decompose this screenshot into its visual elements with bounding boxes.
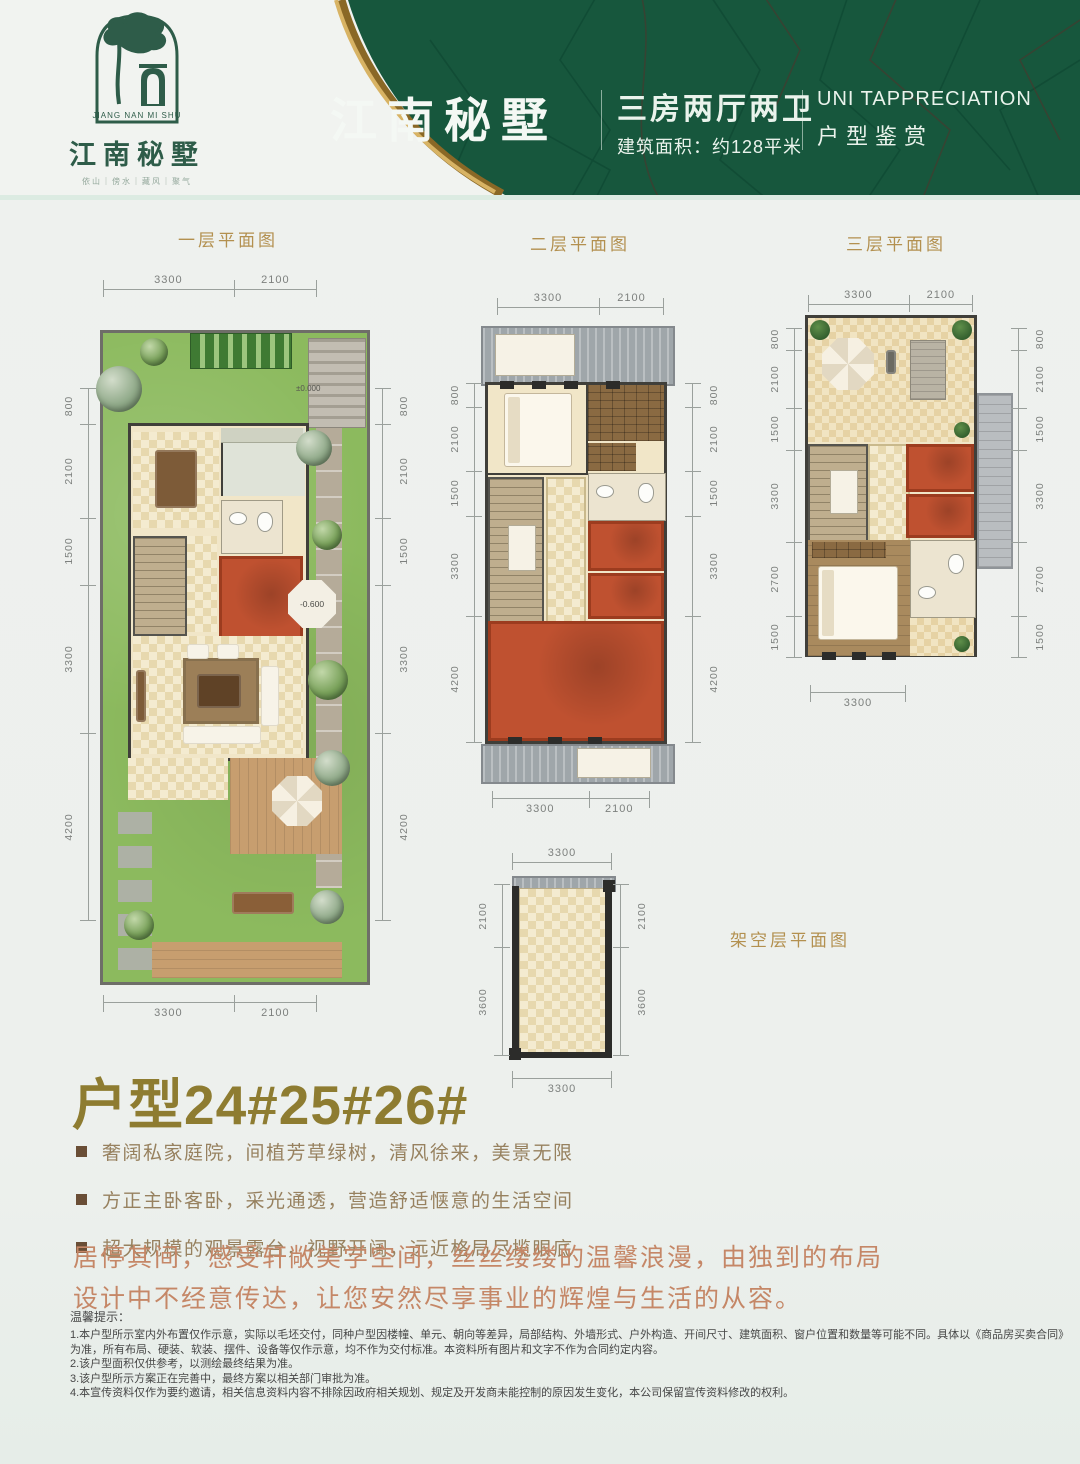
bullet-square-icon — [76, 1194, 87, 1205]
dim-label: 3300 — [769, 482, 781, 509]
feature-text: 奢阔私家庭院，间植芳草绿树，清风徐来，美景无限 — [102, 1138, 574, 1165]
dim-segment: 1500 — [692, 471, 709, 516]
red-room — [906, 494, 974, 538]
dim-label: 2700 — [1034, 565, 1046, 592]
dim-segment: 3300 — [492, 798, 589, 816]
dim-segment: 3300 — [1018, 450, 1035, 542]
bed-icon — [504, 393, 572, 467]
skylight-panel — [495, 334, 575, 376]
dim-segment: 3300 — [382, 585, 399, 733]
dim-segment: 2100 — [599, 290, 664, 308]
dim-segment: 1500 — [1018, 408, 1035, 450]
dim-segment: 2100 — [589, 798, 650, 816]
floor3-plan — [805, 315, 977, 663]
outside-walkway — [977, 393, 1013, 569]
wall — [512, 886, 519, 1056]
dim-segment: 3300 — [497, 290, 599, 308]
entry-steps — [308, 338, 366, 428]
dim-label: 3600 — [477, 988, 489, 1015]
dim-label: 2100 — [769, 366, 781, 393]
dim-label: 3300 — [398, 645, 410, 672]
plant-icon — [954, 422, 970, 438]
plant-icon — [954, 636, 970, 652]
dim-label: 1500 — [398, 538, 410, 565]
dim-label: 800 — [1034, 329, 1046, 350]
bullet-square-icon — [76, 1146, 87, 1157]
slogan-line1: 居停其间，感受轩敞美学空间，丝丝缕缕的温馨浪漫，由独到的布局 — [73, 1238, 883, 1279]
dim-segment: 2100 — [692, 407, 709, 471]
window-block — [852, 652, 866, 660]
window-block — [882, 652, 896, 660]
dim-label: 3300 — [548, 847, 576, 859]
dim-label: 800 — [398, 396, 410, 417]
sink-icon — [229, 512, 247, 525]
brand-logo: JIANG NAN MI SHU 江南秘墅 依山｜傍水｜藏风｜聚气 — [52, 8, 222, 187]
dim-segment: 800 — [1018, 328, 1035, 350]
stair-landing — [830, 470, 858, 514]
dim-segment: 2100 — [234, 272, 317, 290]
floor3-dim-bottom: 3300 — [810, 692, 906, 710]
dim-segment: 3300 — [512, 845, 612, 863]
appreciation-en: UNI TAPPRECIATION — [817, 88, 1032, 111]
dim-label: 4200 — [398, 813, 410, 840]
window-block — [606, 381, 620, 389]
armchair-icon — [217, 644, 239, 659]
dim-segment: 800 — [458, 383, 475, 407]
dim-segment: 4200 — [72, 733, 89, 921]
floor3-title: 三层平面图 — [826, 230, 966, 255]
dim-segment: 800 — [72, 388, 89, 424]
dim-segment: 2100 — [382, 424, 399, 518]
skylight-panel — [577, 748, 651, 778]
dim-segment: 3300 — [458, 516, 475, 616]
disclaimer-item: 1.本户型所示室内外布置仅作示意，实际以毛坯交付，同种户型因楼幢、单元、朝向等差… — [70, 1328, 1074, 1357]
dim-segment: 3300 — [103, 272, 234, 290]
stilt-dim-bottom: 3300 — [512, 1078, 612, 1096]
dim-label: 3300 — [534, 292, 562, 304]
dim-label: 2100 — [927, 289, 955, 301]
elevation-pad: -0.600 — [288, 580, 336, 628]
logo-brand-cn: 江南秘墅 — [52, 133, 222, 172]
dim-label: 1500 — [63, 538, 75, 565]
feature-text: 方正主卧客卧，采光通透，营造舒适惬意的生活空间 — [102, 1186, 574, 1213]
entry-elevation-marker: ±0.000 — [296, 384, 320, 393]
dim-label: 1500 — [449, 480, 461, 507]
tree-icon — [308, 660, 348, 700]
unit-spec: 三房两厅两卫 建筑面积：约128平米 — [617, 84, 815, 159]
dim-segment: 3300 — [103, 1002, 234, 1020]
dim-label: 1500 — [1034, 624, 1046, 651]
dim-label: 4200 — [63, 813, 75, 840]
tree-icon — [140, 338, 168, 366]
umbrella-icon — [272, 776, 322, 826]
tv-cabinet — [136, 670, 146, 722]
red-terrace-room — [488, 621, 664, 741]
appreciation-cn: 户型鉴赏 — [817, 119, 1032, 151]
lounge-chair-icon — [910, 340, 946, 400]
bed-icon — [818, 566, 898, 640]
dim-segment: 3300 — [692, 516, 709, 616]
dim-label: 3300 — [526, 803, 554, 815]
floor1-dim-bottom: 3300 2100 — [103, 1002, 317, 1020]
wardrobe-icon — [588, 385, 664, 441]
dim-segment: 2100 — [778, 350, 795, 408]
dim-segment: 2100 — [458, 407, 475, 471]
dim-segment: 1500 — [382, 518, 399, 585]
dim-label: 2100 — [605, 803, 633, 815]
dim-label: 1500 — [769, 624, 781, 651]
toilet-icon — [948, 554, 964, 574]
bench-icon — [232, 892, 294, 914]
kitchen-counter — [221, 428, 303, 443]
stilt-plan — [512, 876, 612, 1060]
floor2-dim-right: 800 2100 1500 3300 4200 — [692, 383, 709, 743]
floor1-dim-right: 800 2100 1500 3300 4200 — [382, 388, 399, 921]
tree-icon — [314, 750, 350, 786]
tree-icon — [96, 366, 142, 412]
dim-segment: 800 — [382, 388, 399, 424]
plant-icon — [810, 320, 830, 340]
dim-segment: 3300 — [810, 692, 906, 710]
hall-runner — [868, 444, 910, 542]
dim-label: 2100 — [63, 457, 75, 484]
dim-segment: 1500 — [72, 518, 89, 585]
dim-segment: 1500 — [778, 408, 795, 450]
staircase — [133, 536, 187, 636]
corner-post — [603, 880, 615, 892]
dim-label: 2100 — [477, 902, 489, 929]
page-title: 江南秘墅 — [330, 82, 558, 151]
window-block — [822, 652, 836, 660]
logo-brand-en: JIANG NAN MI SHU — [93, 111, 182, 120]
dim-label: 3300 — [154, 274, 182, 286]
stilt-plan-title: 架空层平面图 — [730, 926, 850, 951]
dim-label: 2100 — [261, 1007, 289, 1019]
dim-segment: 3600 — [620, 947, 637, 1056]
dim-label: 3300 — [844, 289, 872, 301]
dim-label: 2100 — [636, 902, 648, 929]
sink-icon — [918, 586, 936, 599]
dim-label: 3300 — [449, 552, 461, 579]
tree-icon — [124, 910, 154, 940]
sink-icon — [596, 485, 614, 498]
appreciation-block: UNI TAPPRECIATION 户型鉴赏 — [817, 88, 1032, 151]
dim-label: 1500 — [769, 416, 781, 443]
dim-label: 2700 — [769, 565, 781, 592]
hall-runner — [546, 477, 586, 623]
floor3-dim-top: 3300 2100 — [808, 287, 973, 305]
dim-segment: 800 — [778, 328, 795, 350]
tree-icon — [296, 430, 332, 466]
coffee-table-icon — [197, 674, 241, 708]
red-room — [588, 521, 664, 571]
dim-segment: 2100 — [486, 884, 503, 947]
tree-icon — [310, 890, 344, 924]
wall — [605, 886, 612, 1056]
foyer — [187, 536, 217, 632]
dim-segment: 2100 — [620, 884, 637, 947]
armchair-icon — [187, 644, 209, 659]
wall — [512, 1052, 612, 1058]
stilt-dim-right: 2100 3600 — [620, 884, 637, 1056]
floor2-dim-left: 800 2100 1500 3300 4200 — [458, 383, 475, 743]
dim-segment: 2100 — [72, 424, 89, 518]
disclaimer-item: 2.该户型面积仅供参考，以测绘最终结果为准。 — [70, 1357, 1074, 1372]
dim-label: 4200 — [708, 666, 720, 693]
corner-post — [509, 1048, 521, 1060]
logo-tagline: 依山｜傍水｜藏风｜聚气 — [52, 176, 222, 187]
dresser-icon — [588, 443, 636, 471]
disclaimer-item: 4.本宣传资料仅作为要约邀请，相关信息资料内容不排除因政府相关规划、规定及开发商… — [70, 1386, 1074, 1401]
dim-label: 3300 — [154, 1007, 182, 1019]
dim-segment: 3600 — [486, 947, 503, 1056]
bathroom — [910, 540, 976, 618]
dim-label: 800 — [769, 329, 781, 350]
floor3-building — [805, 315, 977, 657]
bathroom — [221, 500, 283, 554]
dim-segment: 1500 — [458, 471, 475, 516]
window-block — [564, 381, 578, 389]
stair-landing — [508, 525, 536, 571]
dim-label: 4200 — [449, 666, 461, 693]
toilet-icon — [638, 483, 654, 503]
dim-segment: 2100 — [234, 1002, 317, 1020]
dim-label: 1500 — [708, 480, 720, 507]
dim-label: 3300 — [844, 697, 872, 709]
dim-label: 2100 — [398, 457, 410, 484]
floor1-plan: ±0.000 -0.600 — [100, 330, 370, 985]
dim-label: 800 — [63, 396, 75, 417]
dim-segment: 2700 — [778, 542, 795, 617]
feature-item: 奢阔私家庭院，间植芳草绿树，清风徐来，美景无限 — [76, 1138, 574, 1165]
stilt-dim-top: 3300 — [512, 845, 612, 863]
floor1-title: 一层平面图 — [158, 226, 298, 251]
dim-segment: 2100 — [909, 287, 973, 305]
red-room — [588, 573, 664, 619]
tree-icon — [312, 520, 342, 550]
toilet-icon — [257, 512, 273, 532]
dim-label: 1500 — [1034, 416, 1046, 443]
stepping-stones — [118, 810, 152, 970]
header-divider — [802, 90, 803, 150]
dim-segment: 1500 — [778, 616, 795, 658]
dim-segment: 4200 — [458, 616, 475, 743]
dim-segment: 4200 — [382, 733, 399, 921]
sofa-icon — [183, 726, 261, 744]
floor3-dim-right: 800 2100 1500 3300 2700 1500 — [1018, 328, 1035, 658]
window-block — [500, 381, 514, 389]
dim-label: 800 — [708, 385, 720, 406]
dim-segment: 3300 — [512, 1078, 612, 1096]
dim-segment: 800 — [692, 383, 709, 407]
floor3-dim-left: 800 2100 1500 3300 2700 1500 — [778, 328, 795, 658]
dim-segment: 3300 — [808, 287, 909, 305]
dim-label: 2100 — [1034, 366, 1046, 393]
dim-segment: 1500 — [1018, 616, 1035, 658]
dim-label: 800 — [449, 385, 461, 406]
logo-tree-arch-icon: JIANG NAN MI SHU — [85, 8, 189, 126]
floor2-dim-bottom: 3300 2100 — [492, 798, 650, 816]
floor2-plan — [485, 320, 667, 782]
dim-segment: 3300 — [778, 450, 795, 542]
poster: JIANG NAN MI SHU 江南秘墅 依山｜傍水｜藏风｜聚气 江南秘墅 三… — [0, 0, 1080, 1464]
hedge — [190, 333, 292, 369]
elevation-marker: -0.600 — [300, 599, 324, 609]
dining-table-icon — [155, 450, 197, 508]
floor2-building — [485, 382, 667, 744]
dim-label: 2100 — [708, 425, 720, 452]
feature-item: 方正主卧客卧，采光通透，营造舒适惬意的生活空间 — [76, 1186, 574, 1213]
dim-segment: 4200 — [692, 616, 709, 743]
spec-area: 建筑面积：约128平米 — [617, 133, 815, 159]
floor2-dim-top: 3300 2100 — [497, 290, 664, 308]
dim-label: 3300 — [548, 1083, 576, 1095]
patio-tiles — [128, 758, 228, 800]
disclaimer-item: 3.该户型所示方案正在完善中，最终方案以相关部门审批为准。 — [70, 1372, 1074, 1387]
disclaimer-title: 温馨提示： — [70, 1308, 1074, 1325]
stilt-dim-left: 2100 3600 — [486, 884, 503, 1056]
dim-label: 3300 — [63, 645, 75, 672]
dim-segment: 3300 — [72, 585, 89, 733]
header-divider — [601, 90, 602, 150]
wardrobe-icon — [812, 542, 886, 558]
heater-stand — [886, 350, 896, 374]
dim-segment: 2100 — [1018, 350, 1035, 408]
disclaimer: 温馨提示： 1.本户型所示室内外布置仅作示意，实际以毛坯交付，同种户型因楼幢、单… — [70, 1308, 1074, 1401]
dim-label: 2100 — [449, 425, 461, 452]
header-bottom-strip — [0, 195, 1080, 200]
dim-label: 3300 — [708, 552, 720, 579]
plant-icon — [952, 320, 972, 340]
dim-label: 2100 — [617, 292, 645, 304]
unit-number-title: 户型24#25#26# — [72, 1060, 468, 1140]
dim-label: 2100 — [261, 274, 289, 286]
floor1-dim-left: 800 2100 1500 3300 4200 — [72, 388, 89, 921]
floor1-dim-top: 3300 2100 — [103, 272, 317, 290]
window-block — [532, 381, 546, 389]
dim-label: 3600 — [636, 988, 648, 1015]
stilt-interior — [519, 888, 607, 1054]
red-room — [906, 444, 974, 492]
wood-deck-lower — [152, 942, 342, 978]
sofa-icon — [261, 666, 279, 726]
spec-rooms: 三房两厅两卫 — [617, 84, 815, 128]
floor1-building — [128, 423, 309, 761]
dim-label: 3300 — [1034, 482, 1046, 509]
dim-segment: 2700 — [1018, 542, 1035, 617]
header: JIANG NAN MI SHU 江南秘墅 依山｜傍水｜藏风｜聚气 江南秘墅 三… — [0, 0, 1080, 195]
floor2-title: 二层平面图 — [510, 230, 650, 255]
